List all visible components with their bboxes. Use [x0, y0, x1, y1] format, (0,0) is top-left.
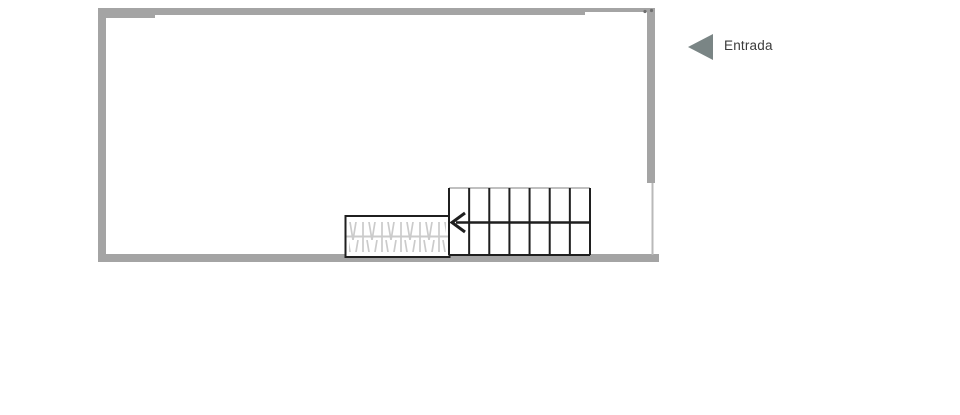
floorplan-canvas	[0, 0, 960, 415]
wall-right	[647, 8, 655, 183]
wall-top-opening	[585, 8, 647, 12]
wall-left	[98, 8, 106, 262]
wall-top-left-thick	[98, 8, 155, 18]
wall-top-main	[155, 8, 585, 15]
floorplan-page: Entrada	[0, 0, 960, 415]
wall-opening-dot-2	[650, 9, 653, 12]
entrance-label: Entrada	[724, 38, 773, 53]
entrance-triangle-icon	[688, 34, 713, 60]
wall-opening-dot-1	[643, 10, 646, 13]
